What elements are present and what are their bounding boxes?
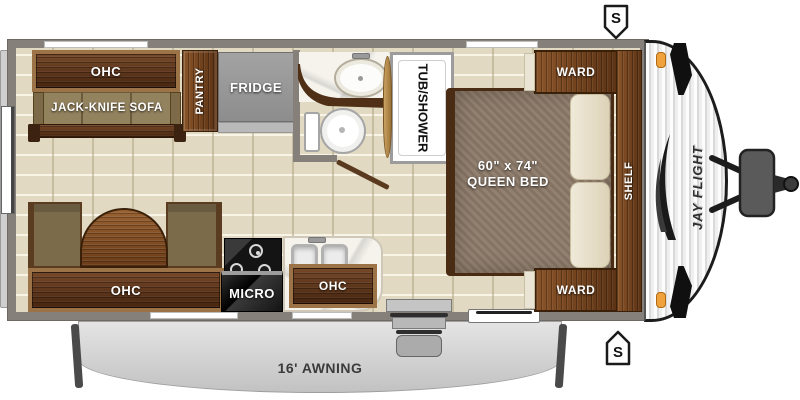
entry-steps-tread2: [392, 317, 446, 329]
bed-pillow-top: [570, 94, 610, 180]
ohc-kitchen-cabinet: OHC: [289, 264, 377, 308]
entry-steps-bar2: [396, 330, 442, 334]
jack-knife-sofa: JACK-KNIFE SOFA: [34, 100, 180, 116]
speaker-top-label: S: [611, 10, 621, 27]
dinette-bench-left: [28, 202, 82, 268]
hitch-assembly: [700, 138, 800, 230]
toilet-tank: [304, 112, 320, 152]
clearance-light-bottom: [656, 292, 666, 308]
wardrobe-top: WARD: [534, 50, 618, 94]
clearance-light-top: [656, 52, 666, 68]
dinette-bench-right: [166, 202, 222, 268]
window-bottom-dinette: [150, 312, 238, 319]
cooktop: [224, 238, 282, 272]
bed-pillow-bottom: [570, 182, 610, 268]
burner-top-dot: [256, 251, 260, 255]
micro-label: MICRO: [229, 286, 275, 301]
brand-bird-graphic: [652, 132, 686, 242]
kitchen-faucet: [308, 237, 326, 243]
bath-sink-drain: [358, 76, 363, 81]
microwave: MICRO: [221, 271, 283, 312]
ohc-kitchen-label: OHC: [319, 279, 347, 293]
ohc-rear-cabinet: OHC: [32, 50, 180, 92]
tub-shower-label: TUB/SHOWER: [416, 64, 431, 153]
fridge-label: FRIDGE: [230, 80, 282, 95]
wardrobe-bottom: WARD: [534, 268, 618, 312]
speaker-bottom-label: S: [613, 344, 623, 361]
speaker-marker-bottom-icon: S: [604, 330, 632, 366]
bed-name-label: QUEEN BED: [446, 174, 570, 190]
ohc-dinette-cabinet: OHC: [28, 268, 224, 312]
entry-door-line: [476, 311, 532, 314]
shower-door: [383, 56, 392, 158]
bed-corner-pad-bottom: [524, 271, 535, 309]
ohc-dinette-label: OHC: [111, 283, 141, 298]
ward-bottom-label: WARD: [557, 283, 596, 297]
bed-label: 60" x 74" QUEEN BED: [446, 158, 570, 190]
bed-corner-pad-top: [524, 53, 535, 91]
window-rear-wall: [1, 106, 15, 214]
fridge-counter: [218, 122, 294, 133]
bath-faucet: [352, 53, 370, 59]
sofa-label: JACK-KNIFE SOFA: [51, 102, 163, 114]
floor-plan: 16' AWNING OHC JACK-KNIFE SOFA PANTRY FR…: [0, 0, 800, 400]
bed-size-label: 60" x 74": [446, 158, 570, 174]
sofa-foot-left: [28, 124, 40, 142]
awning-label: 16' AWNING: [79, 360, 561, 376]
bath-wall-stub: [293, 155, 337, 162]
pantry-label: PANTRY: [194, 68, 206, 115]
entry-steps-tread3: [396, 335, 442, 357]
fridge: FRIDGE: [218, 52, 294, 122]
awning: 16' AWNING: [78, 321, 562, 393]
shelf-label: SHELF: [623, 162, 635, 201]
entry-steps-tread1: [386, 299, 452, 312]
window-bottom-kitchen: [292, 312, 352, 319]
ohc-rear-label: OHC: [91, 64, 121, 79]
window-top-bedroom: [466, 41, 538, 48]
sofa-front-rail: [28, 124, 186, 138]
speaker-marker-top-icon: S: [602, 4, 630, 40]
toilet-flush: [339, 127, 345, 133]
window-top-rear: [44, 41, 148, 48]
ward-top-label: WARD: [557, 65, 596, 79]
